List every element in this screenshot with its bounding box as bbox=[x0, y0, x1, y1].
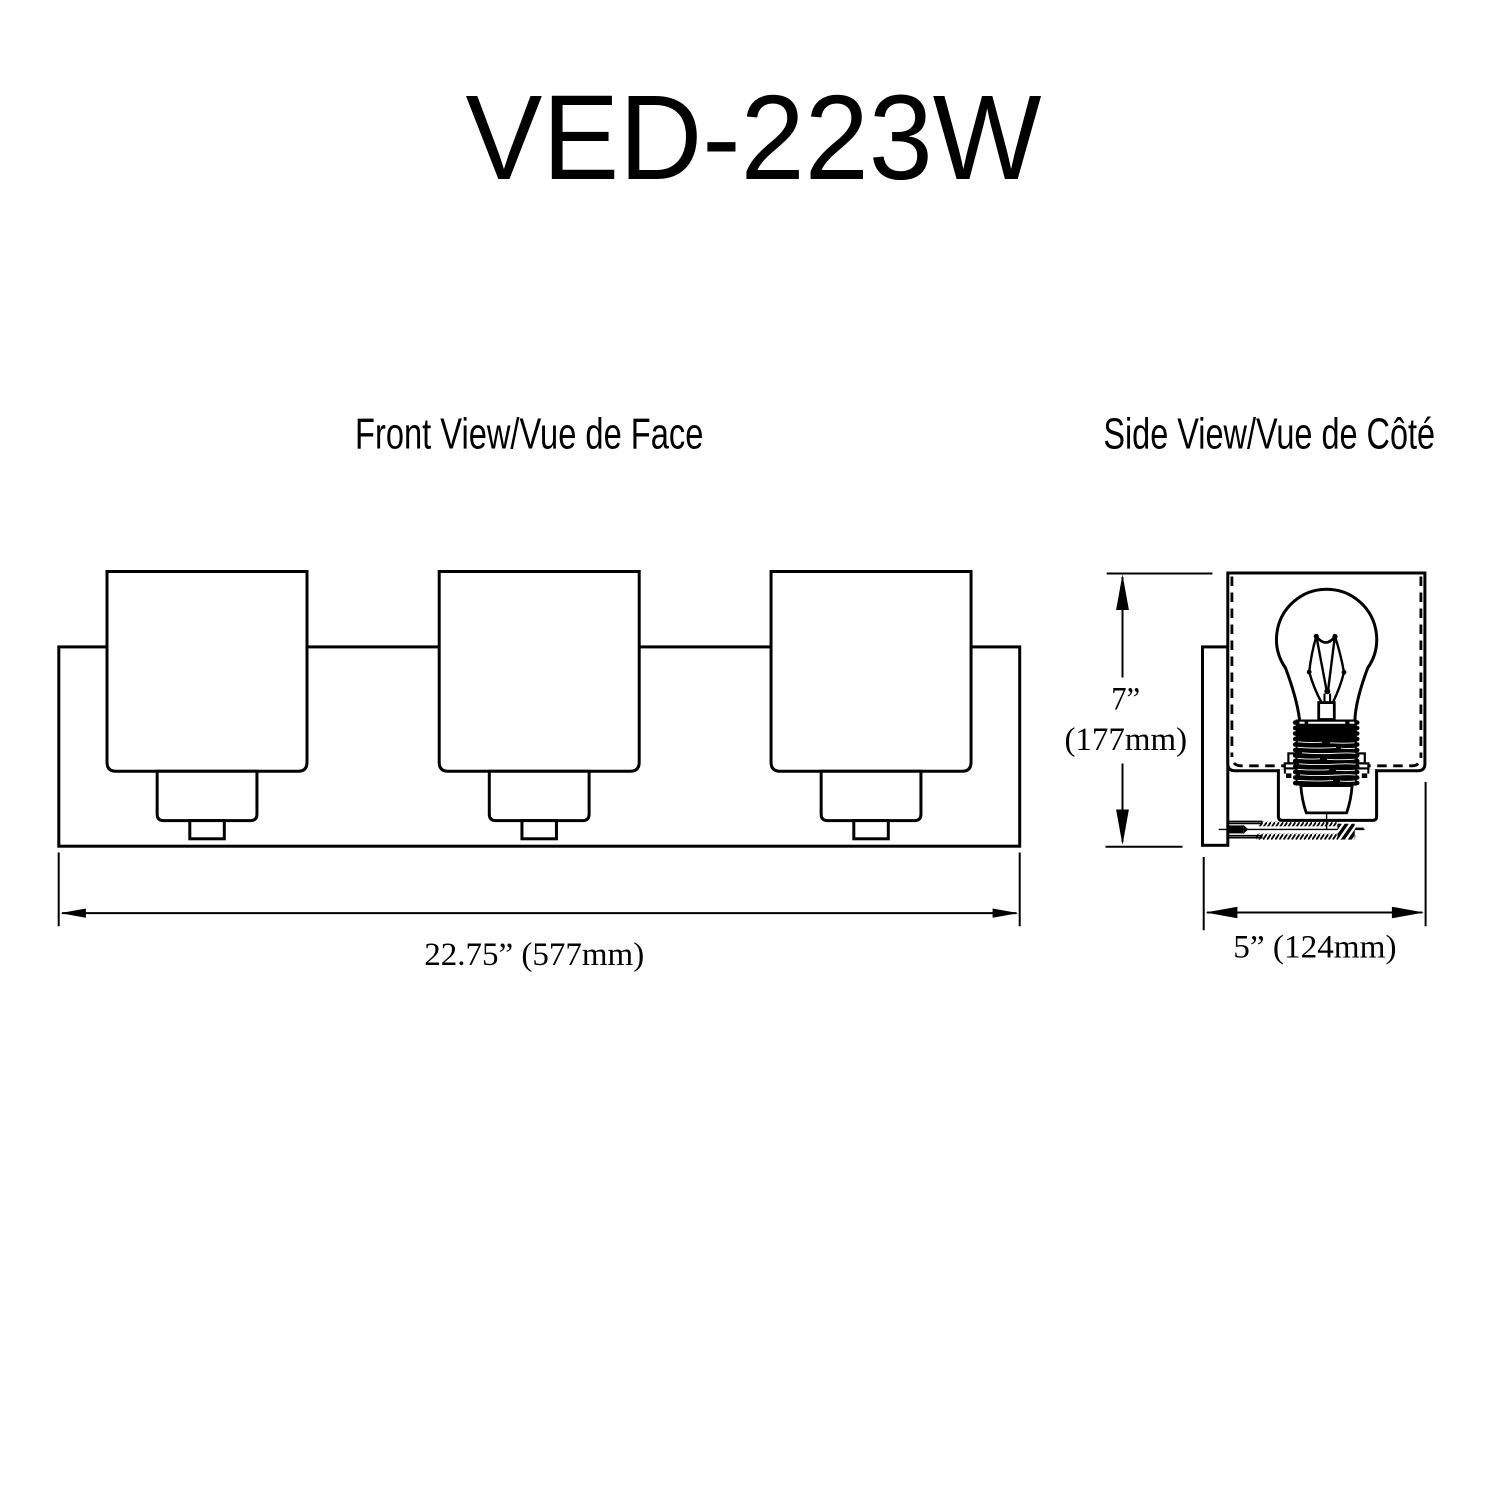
svg-text:7”: 7” bbox=[1111, 682, 1140, 718]
svg-text:(177mm): (177mm) bbox=[1064, 722, 1187, 758]
svg-text:Side View/Vue de Côté: Side View/Vue de Côté bbox=[1103, 410, 1435, 458]
svg-text:Front View/Vue de Face: Front View/Vue de Face bbox=[355, 410, 703, 458]
svg-text:5” (124mm): 5” (124mm) bbox=[1233, 929, 1396, 965]
svg-text:22.75” (577mm): 22.75” (577mm) bbox=[424, 937, 644, 973]
svg-text:VED-223W: VED-223W bbox=[466, 69, 1042, 205]
